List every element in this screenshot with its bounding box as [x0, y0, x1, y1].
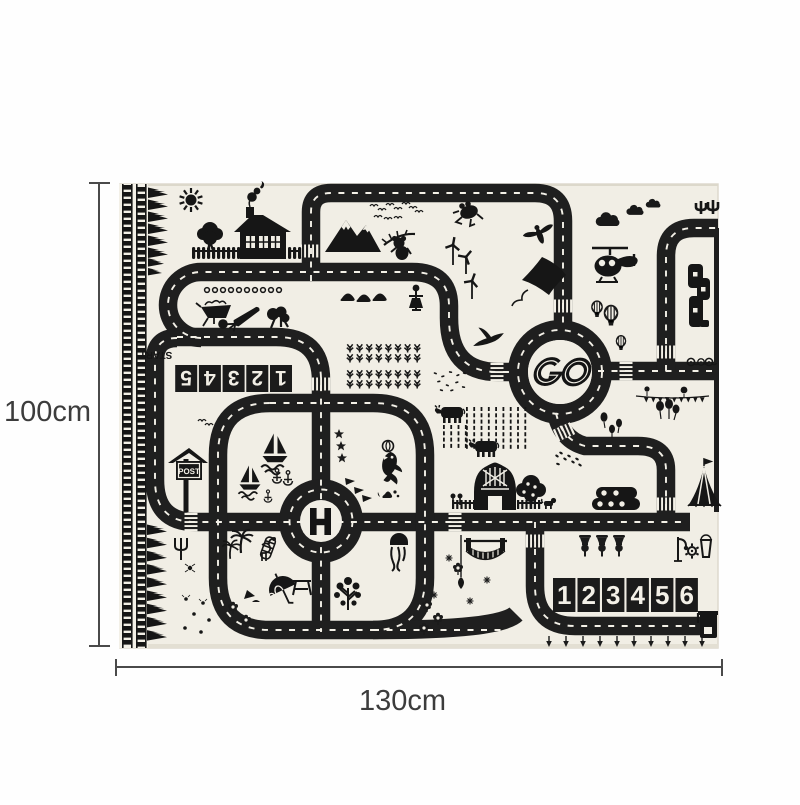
svg-text:4: 4	[204, 366, 216, 389]
svg-text:1: 1	[557, 580, 571, 610]
svg-text:POST: POST	[178, 467, 200, 476]
svg-text:3: 3	[228, 366, 240, 389]
svg-text:5: 5	[655, 580, 669, 610]
svg-text:100cm: 100cm	[4, 396, 91, 428]
svg-text:4: 4	[630, 580, 645, 610]
svg-text:START: START	[140, 349, 173, 360]
svg-text:130cm: 130cm	[359, 685, 446, 717]
svg-text:3: 3	[606, 580, 620, 610]
svg-text:2: 2	[251, 366, 263, 389]
svg-text:6: 6	[679, 580, 693, 610]
svg-text:1: 1	[275, 366, 287, 389]
svg-text:2: 2	[581, 580, 595, 610]
svg-text:5: 5	[180, 366, 192, 389]
